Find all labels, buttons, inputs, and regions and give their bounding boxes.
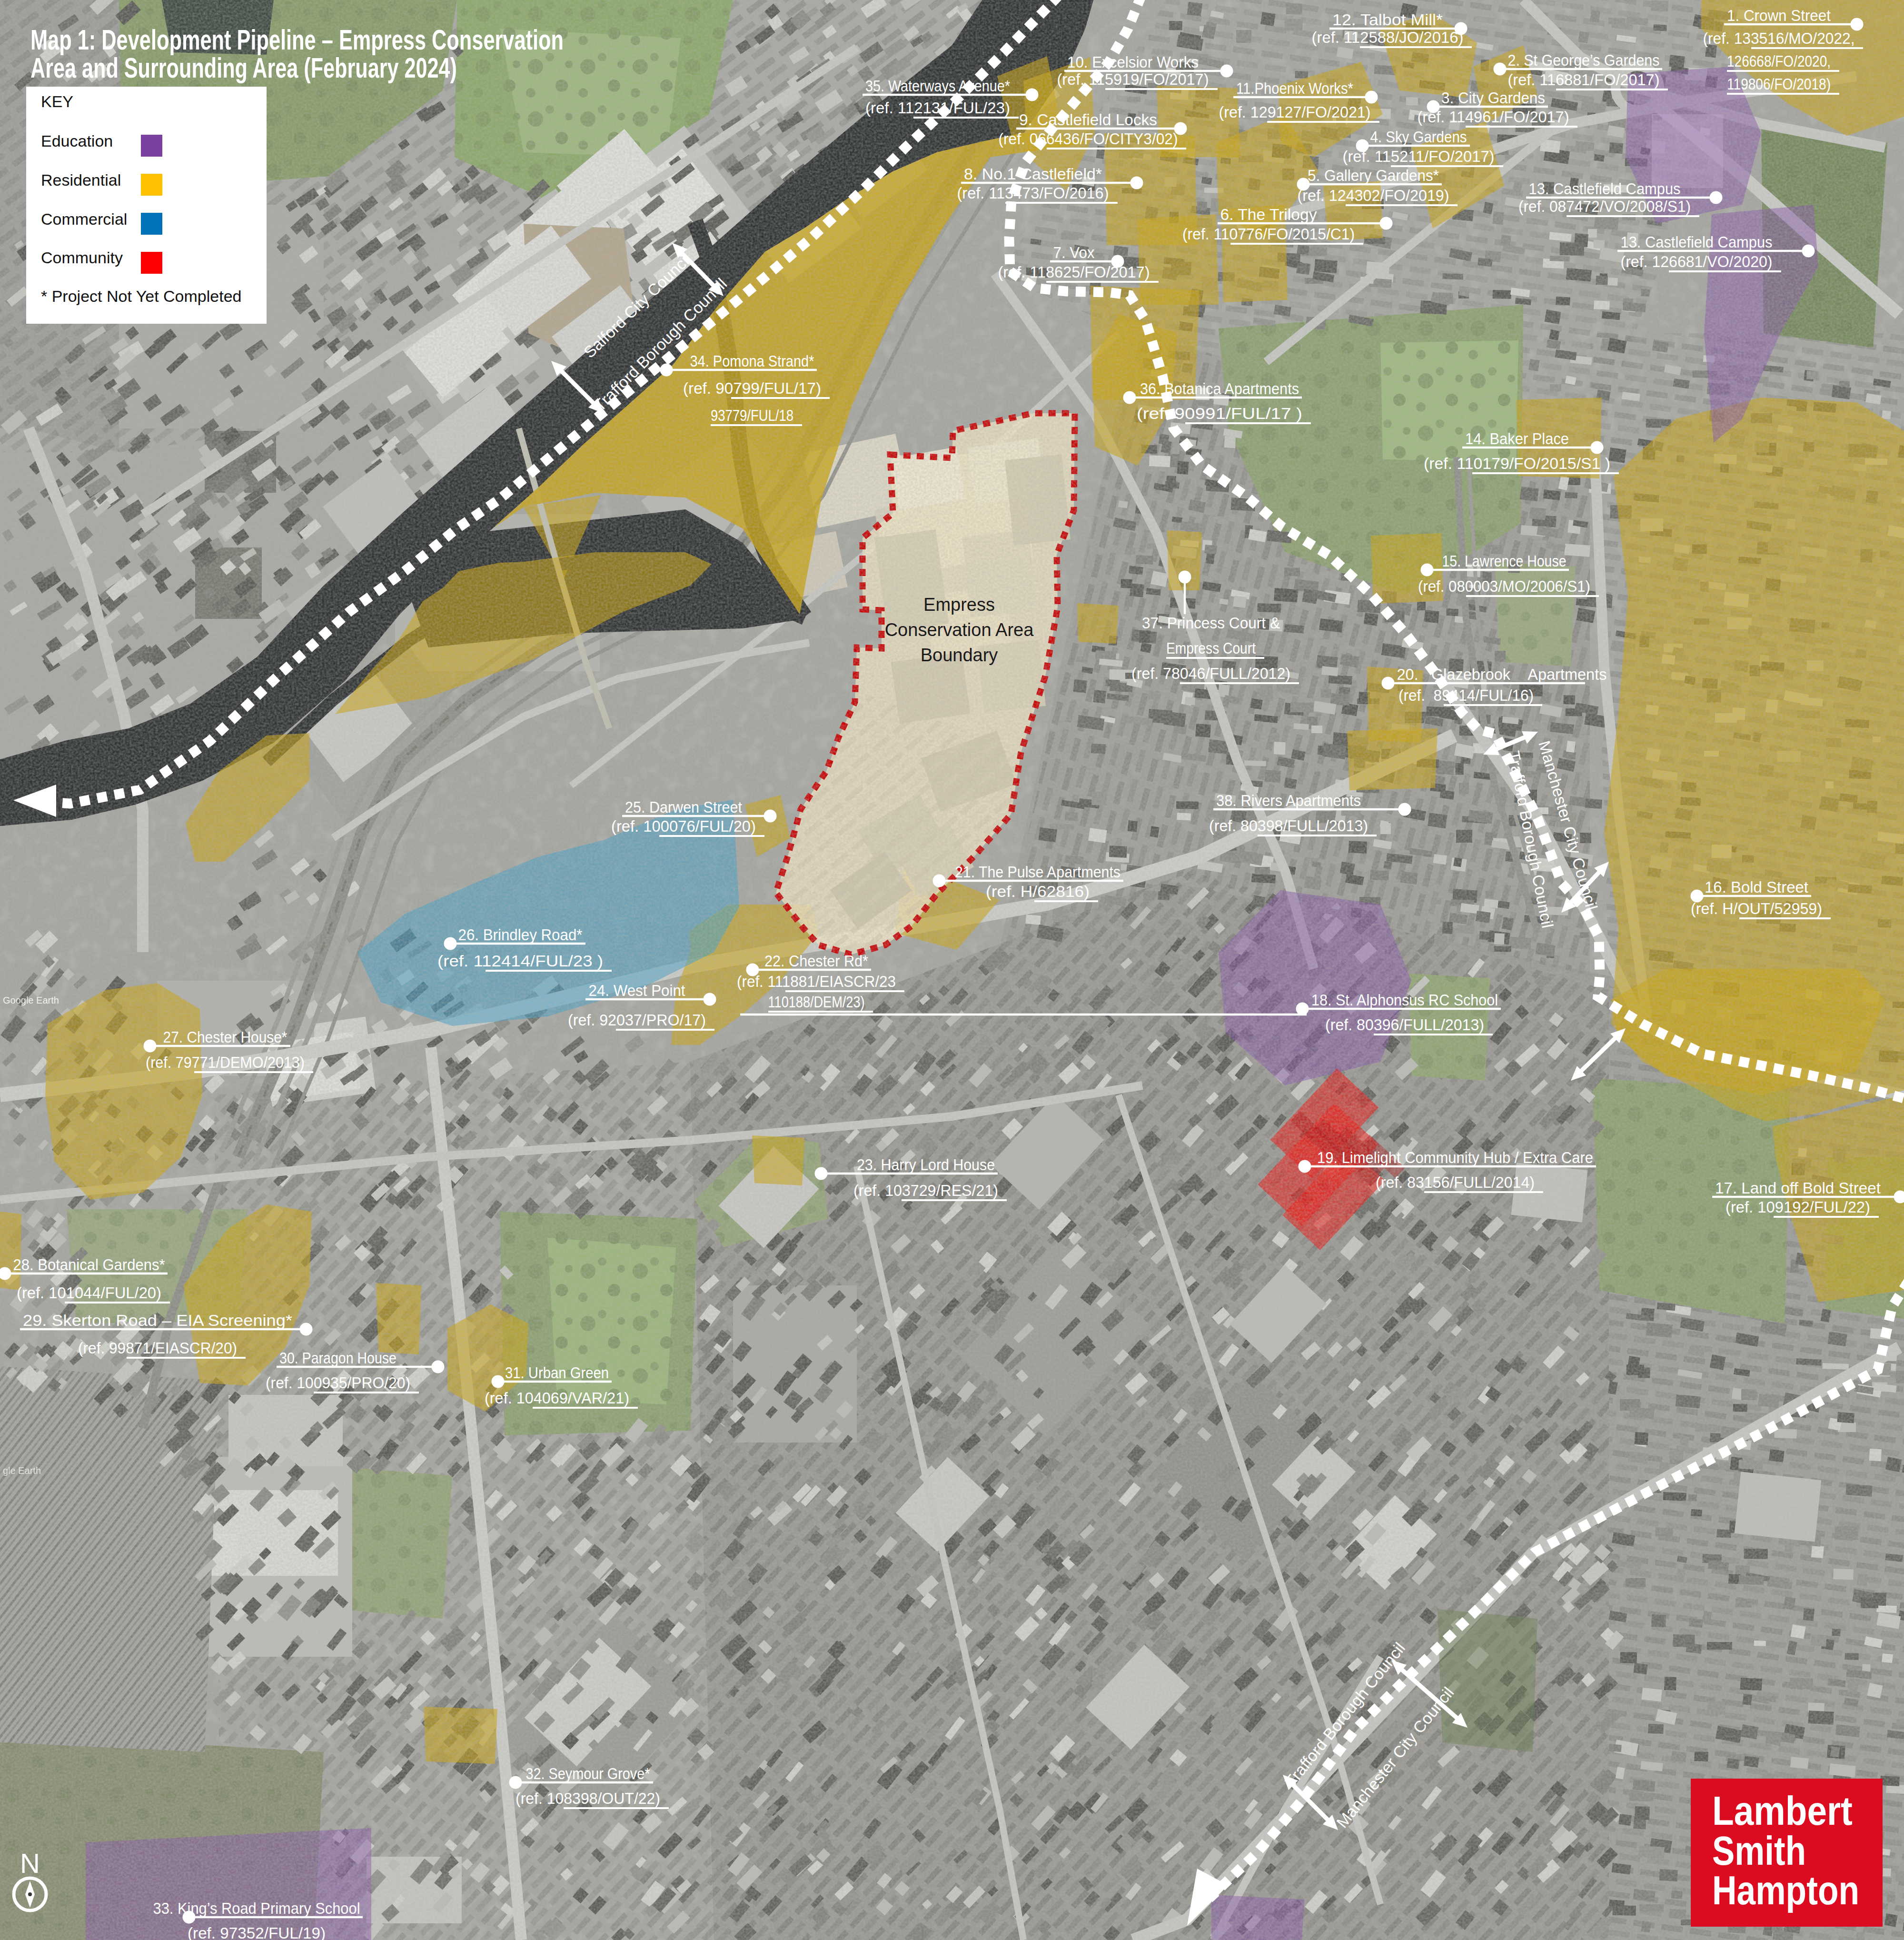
svg-text:22. Chester Rd*: 22. Chester Rd* [764,952,868,970]
svg-text:119806/FO/2018): 119806/FO/2018) [1727,75,1831,93]
svg-text:10. Excelsior Works: 10. Excelsior Works [1067,53,1199,71]
svg-text:(ref. 97352/FUL/19): (ref. 97352/FUL/19) [188,1924,326,1940]
svg-text:(ref. 113473/FO/2016): (ref. 113473/FO/2016) [957,184,1109,202]
svg-text:(ref. 126681/VO/2020): (ref. 126681/VO/2020) [1621,252,1773,270]
svg-text:Area and Surrounding Area (Feb: Area and Surrounding Area (February 2024… [30,52,457,84]
svg-text:* Project Not Yet Completed: * Project Not Yet Completed [41,287,241,305]
svg-text:(ref. 90799/FUL/17): (ref. 90799/FUL/17) [683,379,821,397]
svg-text:(ref. 92037/PRO/17): (ref. 92037/PRO/17) [568,1011,706,1029]
svg-text:(ref. 100076/FUL/20): (ref. 100076/FUL/20) [611,817,756,835]
svg-text:N: N [20,1848,40,1879]
svg-text:(ref. 124302/FO/2019): (ref. 124302/FO/2019) [1298,186,1449,204]
svg-text:Boundary: Boundary [921,645,998,665]
svg-text:(ref. 111881/EIASCR/23: (ref. 111881/EIASCR/23 [737,972,896,990]
svg-text:Smith: Smith [1712,1828,1806,1873]
svg-text:19. Limelight Community Hub /: 19. Limelight Community Hub / Extra Care [1317,1148,1593,1166]
svg-text:37. Princess Court &: 37. Princess Court & [1142,614,1280,632]
svg-text:33. King’s Road Primary School: 33. King’s Road Primary School [153,1899,360,1917]
svg-text:Google Earth: Google Earth [3,995,59,1005]
svg-text:Map 1: Development Pipeline –: Map 1: Development Pipeline – Empress Co… [30,24,564,56]
svg-text:2. St George’s Gardens: 2. St George’s Gardens [1508,51,1660,69]
svg-text:31. Urban Green: 31. Urban Green [505,1363,609,1382]
svg-text:Commercial: Commercial [41,210,127,228]
svg-text:5. Gallery Gardens*: 5. Gallery Gardens* [1308,166,1439,184]
svg-text:(ref. 115211/FO/2017): (ref. 115211/FO/2017) [1343,147,1495,165]
svg-text:Hampton: Hampton [1712,1867,1859,1913]
svg-text:7. Vox: 7. Vox [1053,243,1095,261]
svg-text:24. West Point: 24. West Point [589,981,685,999]
svg-text:30. Paragon House: 30. Paragon House [279,1349,397,1367]
svg-text:16. Bold Street: 16. Bold Street [1705,878,1809,896]
svg-text:13. Castlefield Campus: 13. Castlefield Campus [1621,233,1773,251]
svg-text:(ref. 110776/FO/2015/C1): (ref. 110776/FO/2015/C1) [1182,225,1355,243]
svg-text:(ref. 89414/FUL/16): (ref. 89414/FUL/16) [1398,686,1534,704]
svg-text:(ref. 109192/FUL/22): (ref. 109192/FUL/22) [1725,1198,1870,1216]
svg-text:(ref. 087472/VO/2008/S1): (ref. 087472/VO/2008/S1) [1518,197,1691,215]
svg-text:KEY: KEY [41,92,73,110]
svg-text:18. St. Alphonsus RC School: 18. St. Alphonsus RC School [1311,991,1498,1009]
svg-text:17. Land off Bold Street: 17. Land off Bold Street [1715,1179,1881,1197]
svg-text:11.Phoenix Works*: 11.Phoenix Works* [1236,79,1353,97]
svg-text:6. The Trilogy: 6. The Trilogy [1220,205,1317,223]
svg-text:(ref. 100935/PRO/20): (ref. 100935/PRO/20) [266,1373,410,1392]
svg-text:20. Glazebrook Apartments: 20. Glazebrook Apartments [1397,665,1607,683]
svg-text:(ref. 104069/VAR/21): (ref. 104069/VAR/21) [485,1389,629,1407]
svg-text:13. Castlefield Campus: 13. Castlefield Campus [1529,179,1681,198]
svg-text:Empress: Empress [923,595,995,615]
svg-text:(ref. 115919/FO/2017): (ref. 115919/FO/2017) [1057,70,1209,88]
svg-text:35. Waterways Avenue*: 35. Waterways Avenue* [865,77,1010,95]
svg-text:(ref. 79771/DEMO/2013): (ref. 79771/DEMO/2013) [146,1053,305,1071]
svg-text:(ref. 99871/EIASCR/20): (ref. 99871/EIASCR/20) [78,1339,237,1357]
svg-text:8. No.1 Castlefield*: 8. No.1 Castlefield* [964,165,1102,183]
svg-text:(ref. 108398/OUT/22): (ref. 108398/OUT/22) [516,1789,660,1807]
svg-text:(ref. 118625/FO/2017): (ref. 118625/FO/2017) [998,263,1150,281]
svg-text:(ref. 101044/FUL/20): (ref. 101044/FUL/20) [17,1283,161,1302]
svg-text:(ref. H/OUT/52959): (ref. H/OUT/52959) [1691,899,1822,917]
svg-text:9. Castlefield Locks: 9. Castlefield Locks [1019,110,1157,129]
svg-text:(ref. 80396/FULL/2013): (ref. 80396/FULL/2013) [1325,1015,1484,1034]
svg-text:Community: Community [41,249,123,267]
svg-text:4. Sky Gardens: 4. Sky Gardens [1370,128,1467,146]
svg-text:(ref. 129127/FO/2021): (ref. 129127/FO/2021) [1219,103,1371,121]
svg-text:(ref. 112131/FUL/23): (ref. 112131/FUL/23) [865,99,1010,117]
svg-text:25. Darwen Street: 25. Darwen Street [625,798,742,816]
svg-text:29. Skerton Road – EIA S: 29. Skerton Road – EIA Screening* [23,1311,292,1329]
svg-text:23. Harry Lord House: 23. Harry Lord House [857,1155,995,1174]
svg-text:(ref. 90991/FUL/17 ): (ref. 90991/FUL/17 ) [1137,404,1302,422]
svg-text:(ref. 116881/FO/2017): (ref. 116881/FO/2017) [1508,70,1660,89]
svg-text:Residential: Residential [41,171,121,189]
svg-text:gle Earth: gle Earth [3,1465,41,1476]
svg-text:38. Rivers Apartments: 38. Rivers Apartments [1216,791,1361,809]
svg-text:1. Crown Street: 1. Crown Street [1727,6,1831,24]
svg-text:(ref. 112414/FUL/23 ): (ref. 112414/FUL/23 ) [437,952,603,970]
svg-text:3. City Gardens: 3. City Gardens [1441,89,1545,107]
svg-text:(ref. 066436/FO/CITY3/02): (ref. 066436/FO/CITY3/02) [999,129,1178,148]
svg-text:(ref. 112588/JO/2016): (ref. 112588/JO/2016) [1312,28,1464,46]
svg-text:(ref. 80398/FULL/2013): (ref. 80398/FULL/2013) [1209,816,1368,835]
svg-text:(ref. 110179/FO/2015/S1 ): (ref. 110179/FO/2015/S1 ) [1424,454,1610,472]
svg-text:32. Seymour Grove*: 32. Seymour Grove* [526,1764,650,1782]
svg-text:(ref. 114961/FO/2017): (ref. 114961/FO/2017) [1418,108,1569,126]
svg-text:Lambert: Lambert [1712,1788,1853,1833]
svg-text:28. Botanical Gardens*: 28. Botanical Gardens* [13,1255,165,1273]
svg-text:27. Chester House*: 27. Chester House* [163,1028,288,1046]
svg-text:36. Botanica Apartments: 36. Botanica Apartments [1140,379,1299,398]
svg-text:Empress Court: Empress Court [1166,639,1256,657]
svg-text:Conservation Area: Conservation Area [885,620,1034,640]
svg-text:(ref. 080003/MO/2006/S1): (ref. 080003/MO/2006/S1) [1418,577,1590,595]
svg-text:(ref. H/62816): (ref. H/62816) [986,882,1090,900]
svg-text:15. Lawrence House: 15. Lawrence House [1442,552,1567,570]
svg-text:14. Baker Place: 14. Baker Place [1465,429,1569,448]
svg-text:12. Talbot Mill*: 12. Talbot Mill* [1332,10,1443,29]
svg-text:(ref. 103729/RES/21): (ref. 103729/RES/21) [853,1181,998,1199]
svg-text:(ref. 133516/MO/2022,: (ref. 133516/MO/2022, [1703,29,1855,47]
svg-text:126668/FO/2020,: 126668/FO/2020, [1727,52,1831,70]
svg-text:93779/FUL/18: 93779/FUL/18 [711,406,793,424]
svg-text:(ref. 78046/FULL/2012): (ref. 78046/FULL/2012) [1131,664,1290,682]
svg-text:34. Pomona Strand*: 34. Pomona Strand* [690,352,814,370]
svg-text:(ref. 83156/FULL/2014): (ref. 83156/FULL/2014) [1376,1173,1535,1191]
svg-text:110188/DEM/23): 110188/DEM/23) [768,993,865,1011]
svg-text:Education: Education [41,132,113,150]
svg-text:21. The Pulse Apartments: 21. The Pulse Apartments [955,863,1121,881]
svg-text:26. Brindley Road*: 26. Brindley Road* [458,925,583,944]
